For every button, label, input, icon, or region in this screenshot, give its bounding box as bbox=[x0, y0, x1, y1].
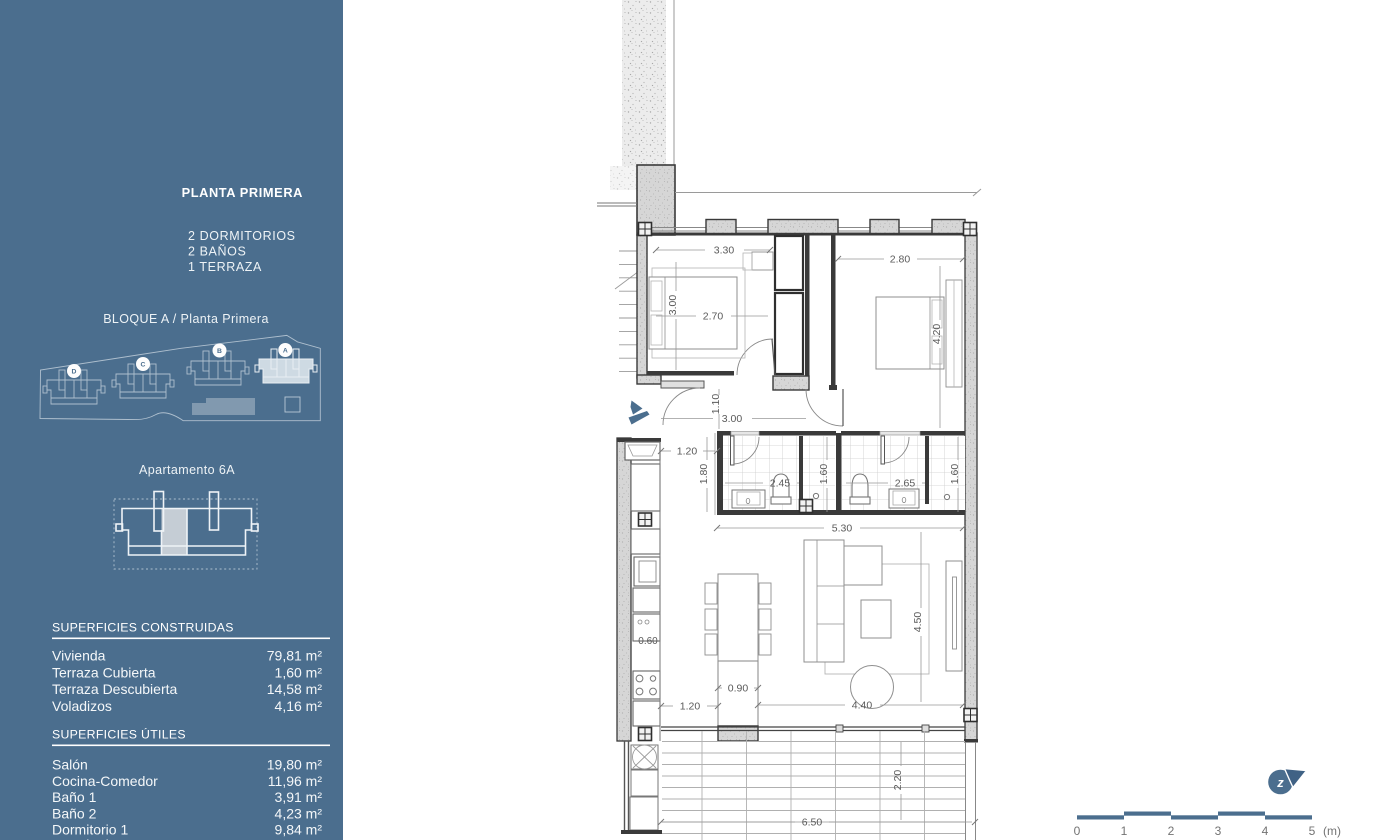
svg-text:1.60: 1.60 bbox=[818, 464, 830, 485]
svg-text:0: 0 bbox=[1074, 824, 1081, 838]
svg-text:Baño 2: Baño 2 bbox=[52, 805, 97, 821]
svg-text:4.20: 4.20 bbox=[931, 324, 943, 345]
svg-text:BLOQUE A / Planta Primera: BLOQUE A / Planta Primera bbox=[103, 312, 269, 326]
svg-text:D: D bbox=[72, 368, 77, 375]
svg-text:2.20: 2.20 bbox=[892, 770, 904, 791]
svg-text:3.00: 3.00 bbox=[667, 295, 679, 316]
svg-text:Voladizos: Voladizos bbox=[52, 698, 112, 714]
svg-text:19,80 m²: 19,80 m² bbox=[267, 757, 323, 773]
svg-text:4.50: 4.50 bbox=[912, 612, 924, 633]
svg-text:5: 5 bbox=[1309, 824, 1316, 838]
svg-text:Terraza Cubierta: Terraza Cubierta bbox=[52, 664, 156, 680]
svg-text:Apartamento 6A: Apartamento 6A bbox=[139, 463, 235, 477]
svg-text:2 DORMITORIOS: 2 DORMITORIOS bbox=[188, 229, 296, 243]
svg-text:3: 3 bbox=[1215, 824, 1222, 838]
svg-text:1.80: 1.80 bbox=[698, 464, 710, 485]
svg-text:PLANTA PRIMERA: PLANTA PRIMERA bbox=[182, 185, 303, 200]
svg-text:4: 4 bbox=[1262, 824, 1269, 838]
svg-text:4.40: 4.40 bbox=[852, 700, 873, 712]
svg-text:A: A bbox=[283, 347, 288, 354]
svg-text:Dormitorio 2: Dormitorio 2 bbox=[52, 837, 128, 840]
svg-text:9,84 m²: 9,84 m² bbox=[275, 822, 323, 838]
svg-text:3.30: 3.30 bbox=[714, 245, 735, 257]
svg-text:4,23 m²: 4,23 m² bbox=[275, 805, 323, 821]
svg-text:0.90: 0.90 bbox=[728, 683, 749, 695]
svg-text:2: 2 bbox=[1168, 824, 1175, 838]
svg-text:1,60 m²: 1,60 m² bbox=[275, 664, 323, 680]
svg-text:SUPERFICIES ÚTILES: SUPERFICIES ÚTILES bbox=[52, 727, 186, 742]
svg-text:0.60: 0.60 bbox=[638, 636, 658, 647]
svg-text:79,81 m²: 79,81 m² bbox=[267, 648, 323, 664]
svg-text:Salón: Salón bbox=[52, 757, 88, 773]
svg-text:1.20: 1.20 bbox=[677, 446, 698, 458]
svg-text:Cocina-Comedor: Cocina-Comedor bbox=[52, 773, 158, 789]
svg-text:1: 1 bbox=[1121, 824, 1128, 838]
svg-text:1.60: 1.60 bbox=[949, 464, 961, 485]
svg-text:11,96 m²: 11,96 m² bbox=[268, 773, 323, 789]
svg-text:1 TERRAZA: 1 TERRAZA bbox=[188, 260, 262, 274]
svg-text:1.20: 1.20 bbox=[680, 701, 701, 713]
svg-text:B: B bbox=[217, 348, 222, 355]
svg-text:14,68 m²: 14,68 m² bbox=[267, 837, 323, 840]
svg-text:(m): (m) bbox=[1323, 824, 1341, 838]
svg-text:6.50: 6.50 bbox=[802, 817, 823, 829]
svg-text:2.80: 2.80 bbox=[890, 254, 911, 266]
svg-text:2.45: 2.45 bbox=[770, 478, 791, 490]
svg-text:14,58 m²: 14,58 m² bbox=[267, 681, 323, 697]
svg-text:SUPERFICIES CONSTRUIDAS: SUPERFICIES CONSTRUIDAS bbox=[52, 621, 234, 635]
svg-text:z: z bbox=[1276, 775, 1284, 790]
svg-text:C: C bbox=[141, 361, 146, 368]
svg-text:3.00: 3.00 bbox=[722, 413, 743, 425]
svg-text:Terraza Descubierta: Terraza Descubierta bbox=[52, 681, 177, 697]
svg-text:2 BAÑOS: 2 BAÑOS bbox=[188, 245, 246, 259]
svg-text:5.30: 5.30 bbox=[832, 523, 853, 535]
svg-text:4,16 m²: 4,16 m² bbox=[275, 698, 323, 714]
svg-text:2.70: 2.70 bbox=[703, 311, 724, 323]
svg-text:3,91 m²: 3,91 m² bbox=[275, 789, 323, 805]
svg-text:1.10: 1.10 bbox=[710, 394, 722, 415]
svg-text:2.65: 2.65 bbox=[895, 478, 916, 490]
svg-text:Baño 1: Baño 1 bbox=[52, 789, 97, 805]
svg-text:Vivienda: Vivienda bbox=[52, 648, 106, 664]
svg-text:Dormitorio 1: Dormitorio 1 bbox=[52, 822, 128, 838]
